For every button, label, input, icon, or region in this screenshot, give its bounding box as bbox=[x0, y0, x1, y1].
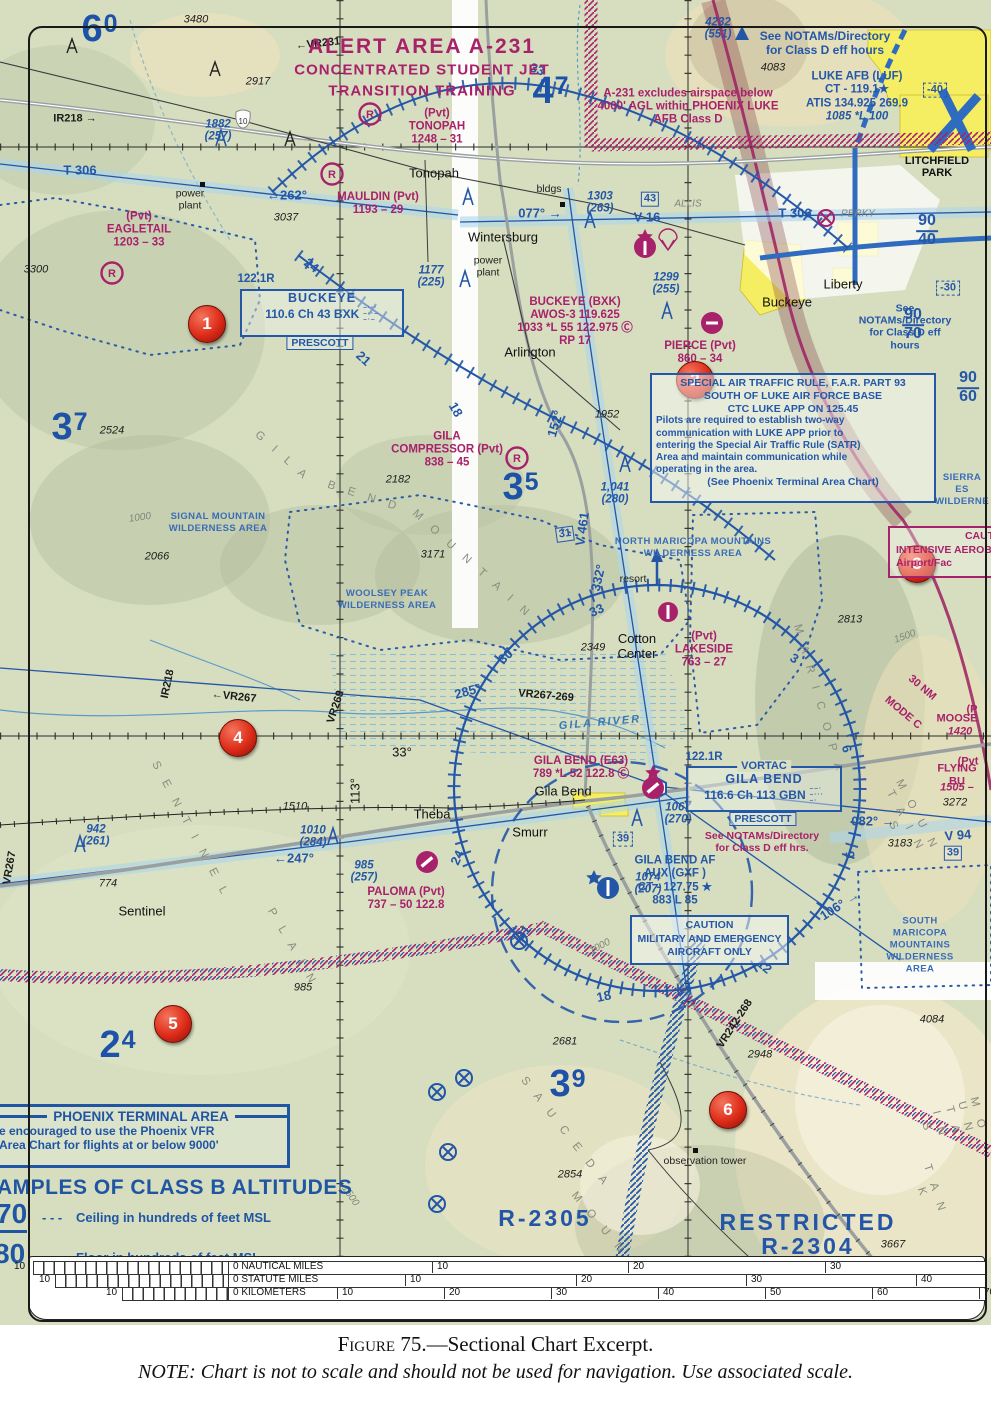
sectional-chart-figure: RR RR bbox=[0, 0, 991, 1405]
interstate-10-shield: 10 bbox=[236, 110, 250, 128]
apt-flying-elev: 1505 – bbox=[940, 782, 974, 795]
elev-2524: 2524 bbox=[100, 425, 124, 438]
scale-mark-kilometers-10: 10 bbox=[342, 1287, 353, 1299]
elev-2066: 2066 bbox=[145, 551, 169, 564]
sectional-chart-map: RR RR bbox=[0, 0, 991, 1325]
scale-divider bbox=[765, 1287, 766, 1299]
classb-90-40: 9040 bbox=[916, 213, 938, 249]
parachute-icon bbox=[659, 229, 677, 250]
road-allis: ALLIS bbox=[674, 198, 701, 210]
scale-mark-statute-miles-30: 30 bbox=[751, 1274, 762, 1286]
scale-mark-kilometers-50: 50 bbox=[770, 1287, 781, 1299]
elev-774: 774 bbox=[99, 878, 117, 891]
scale-pre-statute-miles: 10 bbox=[39, 1274, 50, 1286]
question-marker-4: 4 bbox=[219, 719, 257, 757]
svg-text:10: 10 bbox=[239, 117, 248, 126]
classb-heading: EXAMPLES OF CLASS B ALTITUDES bbox=[0, 1176, 352, 1200]
svg-text:R: R bbox=[108, 268, 116, 280]
town-liberty: Liberty bbox=[823, 278, 862, 293]
awy-t306-b: T 306 bbox=[778, 207, 811, 222]
buckeye-vor-freq: 122.1R bbox=[237, 273, 274, 285]
scale-divider bbox=[825, 1261, 826, 1273]
scale-mark-kilometers-40: 40 bbox=[663, 1287, 674, 1299]
scale-mark-kilometers-60: 60 bbox=[877, 1287, 888, 1299]
gila-bend-vortac-box: VORTAC GILA BEND 116.6 Ch 113 GBN––· –··… bbox=[686, 766, 842, 812]
apt-gilabend-e63: GILA BEND (E63) 789 *L 52 122.8 Ⓒ bbox=[533, 755, 629, 781]
scale-divider bbox=[337, 1287, 338, 1299]
obst-1882: 1882 (257) bbox=[205, 119, 232, 144]
classb-ceiling-dashes: - - - bbox=[42, 1210, 62, 1225]
scale-mark-kilometers-30: 30 bbox=[556, 1287, 567, 1299]
scale-divider bbox=[979, 1287, 980, 1299]
alert-area-line2: CONCENTRATED STUDENT JET bbox=[294, 61, 549, 78]
rose-gb-18: 18 bbox=[595, 988, 612, 1006]
wild-signal: SIGNAL MOUNTAIN WILDERNESS AREA bbox=[169, 511, 268, 535]
question-marker-1: 1 bbox=[188, 305, 226, 343]
apt-gila-compressor: GILA COMPRESSOR (Pvt) 838 – 45 bbox=[391, 430, 503, 469]
elev-4083: 4083 bbox=[761, 62, 785, 75]
obst-1299: 1299 (255) bbox=[653, 272, 680, 297]
apt-moose-elev: 1420 bbox=[948, 726, 972, 739]
notam-note-gila-bend: See NOTAMs/Directoryfor Class D eff hrs. bbox=[705, 831, 819, 855]
brg-077: 077° → bbox=[518, 207, 562, 222]
gila-bend-vor-bracket: PRESCOTT bbox=[729, 812, 796, 826]
scale-divider bbox=[628, 1261, 629, 1273]
apt-mauldin: MAULDIN (Pvt) 1193 – 29 bbox=[337, 191, 419, 217]
brg-082: 082° → bbox=[851, 815, 895, 830]
scale-divider bbox=[658, 1287, 659, 1299]
route-box-39-b: 39 bbox=[944, 846, 962, 861]
town-tonopah: Tonopah bbox=[409, 167, 459, 182]
alert-area-title: ALERT AREA A-231 bbox=[308, 35, 536, 59]
classb-box-40: -40 bbox=[923, 83, 947, 98]
elev-3480: 3480 bbox=[184, 14, 208, 27]
buckeye-vor-box: BUCKEYE 110.6 Ch 43 BXK–··· –··– –·– bbox=[240, 289, 404, 337]
restricted-label: RESTRICTED bbox=[720, 1209, 897, 1235]
wild-sierra: SIERRA ES WILDERNE bbox=[935, 472, 989, 508]
scale-divider bbox=[872, 1287, 873, 1299]
buckeye-vor-bracket: PRESCOTT bbox=[286, 336, 353, 350]
scale-pre-nautical-miles: 10 bbox=[14, 1261, 25, 1273]
luke-afb-data: LUKE AFB (LUF)CT - 119.1★ATIS 134.925 26… bbox=[806, 70, 908, 123]
town-smurr: Smurr bbox=[512, 826, 547, 841]
apt-buckeye: BUCKEYE (BXK) AWOS-3 119.625 1033 *L 55 … bbox=[517, 296, 633, 348]
town-gila-bend: Gila Bend bbox=[534, 785, 591, 800]
elev-2917: 2917 bbox=[246, 76, 270, 89]
poi-power-plant-1: power plant bbox=[176, 188, 205, 212]
caption-note: NOTE: Chart is not to scale and should n… bbox=[0, 1361, 991, 1384]
scale-row-statute-miles bbox=[227, 1274, 987, 1288]
scale-mark-kilometers-70: 70 bbox=[984, 1287, 991, 1299]
wild-north-maricopa: NORTH MARICOPA MOUNTAINS WILDERNESS AREA bbox=[615, 536, 771, 560]
scale-mark-statute-miles-40: 40 bbox=[921, 1274, 932, 1286]
scale-row-nautical-miles bbox=[227, 1261, 987, 1275]
classb-ceiling-text: Ceiling in hundreds of feet MSL bbox=[76, 1210, 271, 1225]
apt-tonopah: (Pvt) TONOPAH 1248 – 31 bbox=[409, 107, 465, 146]
alert-area-line3: TRANSITION TRAINING bbox=[328, 82, 515, 99]
route-box-31: 31 bbox=[555, 525, 575, 542]
scale-seg-statute-miles bbox=[55, 1274, 229, 1288]
elev-2681: 2681 bbox=[553, 1036, 577, 1049]
svg-text:R: R bbox=[328, 169, 336, 181]
elev-3272: 3272 bbox=[943, 797, 967, 810]
obst-4232: 4232 (551) bbox=[705, 17, 732, 42]
brg-262: ←262° bbox=[267, 189, 307, 204]
obst-1010: 1010 (284) bbox=[300, 825, 327, 850]
a231-excludes-note: A-231 excludes airspace below4000' AGL w… bbox=[597, 87, 778, 126]
scale-divider bbox=[576, 1274, 577, 1286]
question-marker-5: 5 bbox=[154, 1005, 192, 1043]
town-sentinel: Sentinel bbox=[119, 905, 166, 920]
apt-gilabend-af: GILA BEND AF AUX (GXF ) CT - 127.75 ★ 88… bbox=[635, 854, 716, 907]
lon-113: 113° bbox=[349, 778, 364, 804]
mef-37: 37 bbox=[51, 406, 88, 450]
scale-divider bbox=[405, 1274, 406, 1286]
obst-1041: 1,041 (280) bbox=[601, 482, 630, 507]
elev-2349: 2349 bbox=[581, 642, 605, 655]
scale-mark-statute-miles-10: 10 bbox=[410, 1274, 421, 1286]
classb-box-30: -30 bbox=[936, 281, 960, 296]
notam-note-buckeye: See NOTAMs/Directoryfor Class D eff hour… bbox=[859, 303, 952, 352]
satr-rule-box: SPECIAL AIR TRAFFIC RULE, F.A.R. PART 93… bbox=[650, 373, 936, 503]
apt-eagletail: (Pvt) EAGLETAIL 1203 – 33 bbox=[107, 210, 171, 249]
poi-obs-tower: observation tower bbox=[664, 1156, 747, 1168]
restricted-2305: R-2305 bbox=[498, 1205, 591, 1231]
route-box-39-a: 39 bbox=[613, 832, 633, 847]
scale-mark-nautical-miles-30: 30 bbox=[830, 1261, 841, 1273]
apt-paloma: PALOMA (Pvt) 737 – 50 122.8 bbox=[367, 886, 444, 912]
scale-pre-kilometers: 10 bbox=[106, 1287, 117, 1299]
route-box-43: 43 bbox=[641, 192, 659, 207]
road-perky: PERKY bbox=[841, 208, 875, 220]
classb-90-60: 9060 bbox=[957, 370, 979, 406]
phoenix-terminal-box: PHOENIX TERMINAL AREA e encouraged to us… bbox=[0, 1104, 290, 1168]
obst-985: 985 (257) bbox=[351, 860, 378, 885]
elev-2948: 2948 bbox=[748, 1049, 772, 1062]
wild-south-maricopa: SOUTH MARICOPA MOUNTAINS WILDERNESS AREA bbox=[885, 915, 956, 974]
elev-4084: 4084 bbox=[920, 1014, 944, 1027]
town-wintersburg: Wintersburg bbox=[468, 231, 538, 246]
awy-v94: V 94 bbox=[944, 827, 972, 844]
notam-note-luke: See NOTAMs/Directoryfor Class D eff hour… bbox=[760, 30, 890, 58]
brg-247: ←247° bbox=[274, 852, 314, 867]
town-theba: Theba bbox=[414, 808, 451, 823]
scale-divider bbox=[746, 1274, 747, 1286]
elev-1952: 1952 bbox=[595, 409, 619, 422]
apt-lakeside: (Pvt) LAKESIDE 763 – 27 bbox=[675, 630, 733, 669]
scale-divider bbox=[916, 1274, 917, 1286]
awy-t306-a: T 306 bbox=[63, 164, 96, 179]
obst-1303: 1303 (263) bbox=[587, 191, 614, 216]
scale-zero-kilometers: 0 KILOMETERS bbox=[233, 1287, 306, 1299]
scale-mark-nautical-miles-20: 20 bbox=[633, 1261, 644, 1273]
elev-2813: 2813 bbox=[838, 614, 862, 627]
elev-3667: 3667 bbox=[881, 1239, 905, 1252]
elev-2854: 2854 bbox=[558, 1169, 582, 1182]
scale-mark-kilometers-20: 20 bbox=[449, 1287, 460, 1299]
town-buckeye: Buckeye bbox=[762, 296, 812, 311]
town-cotton-center: Cotton Center bbox=[617, 632, 656, 662]
svg-text:R: R bbox=[513, 453, 521, 465]
mef-60: 60 bbox=[81, 8, 118, 52]
scale-zero-statute-miles: 0 STATUTE MILES bbox=[233, 1274, 318, 1286]
elev-1510: 1510 bbox=[283, 801, 307, 814]
awy-v16: V 16 bbox=[634, 211, 661, 226]
scale-divider bbox=[432, 1261, 433, 1273]
elev-3300: 3300 bbox=[24, 264, 48, 277]
caution-military-box: CAUTIONMILITARY AND EMERGENCYAIRCRAFT ON… bbox=[630, 915, 789, 965]
poi-resort: resort bbox=[620, 574, 647, 586]
poi-bldgs: bldgs bbox=[536, 184, 561, 196]
gila-bend-vor-freq: 122.1R bbox=[685, 751, 722, 763]
elev-3037: 3037 bbox=[274, 212, 298, 225]
town-litchfield: LITCHFIELD PARK bbox=[905, 155, 969, 179]
ir-218-a: IR218 → bbox=[53, 113, 96, 126]
scale-divider bbox=[551, 1287, 552, 1299]
scale-row-kilometers bbox=[227, 1287, 987, 1301]
scale-seg-kilometers bbox=[122, 1287, 229, 1301]
obst-942: 942 (261) bbox=[83, 824, 110, 849]
elev-2182: 2182 bbox=[386, 474, 410, 487]
classb-ceiling-number: 70 bbox=[0, 1198, 27, 1233]
elev-3171: 3171 bbox=[421, 549, 445, 562]
mef-39: 39 bbox=[549, 1063, 586, 1107]
scale-divider bbox=[444, 1287, 445, 1299]
lat-33: 33° bbox=[392, 746, 412, 761]
scale-mark-statute-miles-20: 20 bbox=[581, 1274, 592, 1286]
apt-moose: MOOSE bbox=[937, 713, 978, 726]
svg-text:R: R bbox=[366, 109, 374, 121]
mef-35: 35 bbox=[502, 466, 539, 510]
caption-line1: Figure 75.—Sectional Chart Excerpt. bbox=[0, 1332, 991, 1357]
scale-mark-nautical-miles-10: 10 bbox=[437, 1261, 448, 1273]
figure-caption: Figure 75.—Sectional Chart Excerpt. NOTE… bbox=[0, 1332, 991, 1384]
question-marker-6: 6 bbox=[709, 1091, 747, 1129]
wild-woolsey: WOOLSEY PEAK WILDERNESS AREA bbox=[338, 588, 437, 612]
mef-24: 24 bbox=[99, 1024, 136, 1068]
caution-intensive-box: CAUTIINTENSIVE AEROBAirport/Fac bbox=[888, 526, 991, 578]
scale-seg-nautical-miles bbox=[33, 1261, 229, 1275]
scale-zero-nautical-miles: 0 NAUTICAL MILES bbox=[233, 1261, 323, 1273]
obst-1177: 1177 (225) bbox=[418, 265, 445, 290]
poi-power-plant-2: power plant bbox=[474, 255, 503, 279]
